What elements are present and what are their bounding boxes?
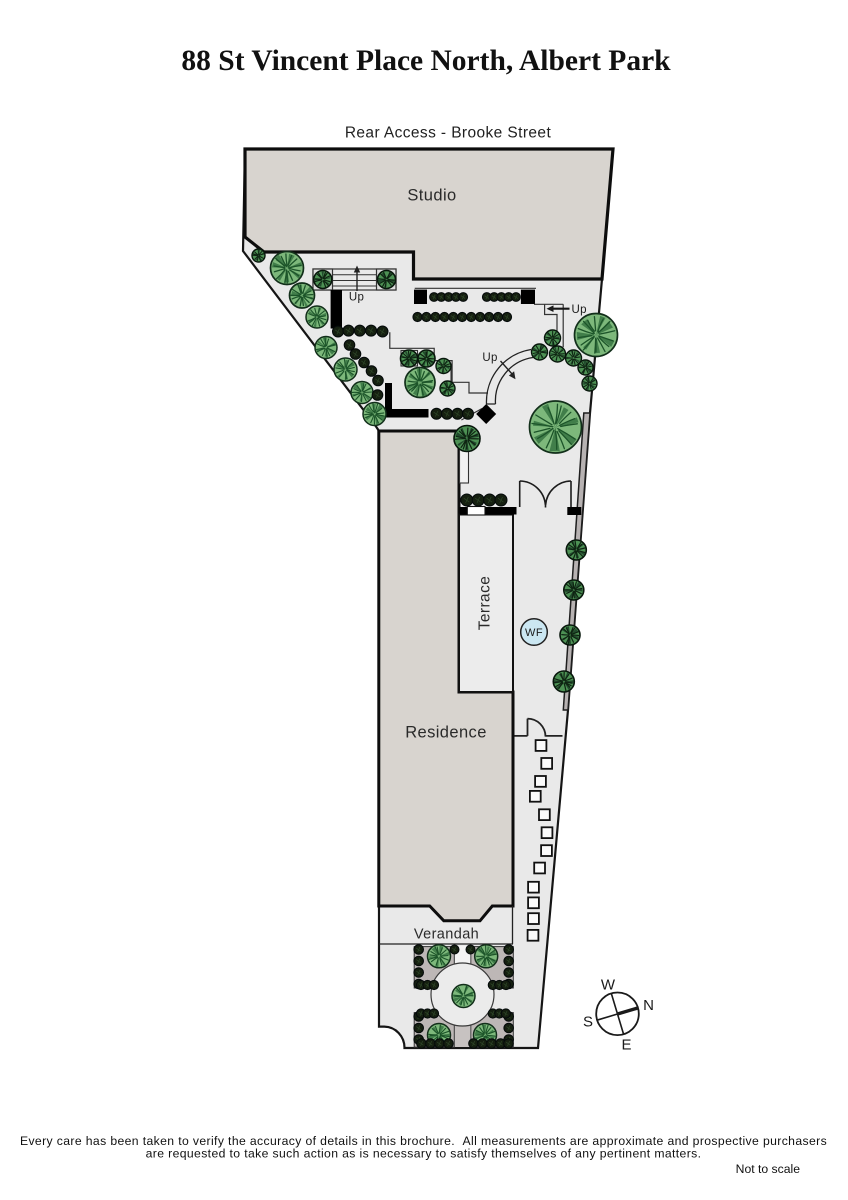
svg-text:E: E [621,1037,631,1054]
svg-text:Terrace: Terrace [477,576,494,630]
svg-text:Residence: Residence [405,724,487,742]
svg-text:S: S [583,1014,593,1031]
svg-text:N: N [643,997,654,1014]
svg-text:W: W [601,977,616,994]
svg-text:Up: Up [349,292,364,304]
svg-text:WF: WF [525,627,543,639]
svg-text:88 St Vincent Place North, Alb: 88 St Vincent Place North, Albert Park [181,45,671,77]
svg-text:are requested to take such act: are requested to take such action as is … [146,1147,702,1161]
svg-text:Verandah: Verandah [414,927,479,943]
svg-text:Up: Up [482,352,497,364]
svg-text:Studio: Studio [407,187,456,205]
svg-text:Up: Up [572,304,587,316]
svg-text:Not to scale: Not to scale [736,1162,801,1176]
svg-text:Rear Access - Brooke Street: Rear Access - Brooke Street [345,125,552,142]
